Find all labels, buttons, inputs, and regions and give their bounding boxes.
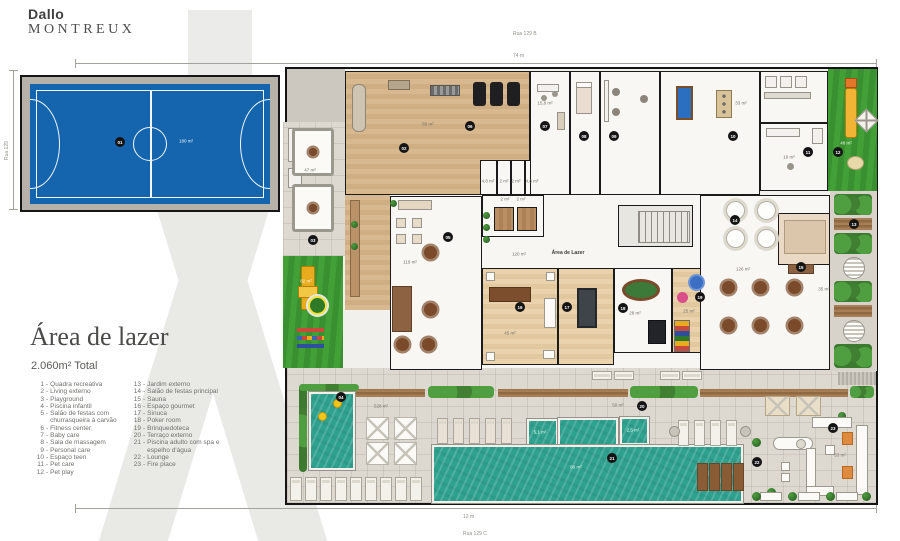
planter-green-2	[630, 386, 698, 398]
brand-subname: MONTREUX	[28, 22, 135, 38]
legend-item-text: Jardim externo	[147, 381, 223, 388]
plan-marker-09: 09	[609, 131, 619, 141]
legend-item-text: -	[46, 410, 48, 417]
garden-bushes-4	[834, 344, 872, 368]
legend-item-text: -	[46, 403, 48, 410]
legend-item-text: -	[46, 454, 48, 461]
legend-item-text: -	[143, 388, 145, 395]
side-table-b2	[740, 426, 751, 437]
exercise-rail	[388, 80, 410, 90]
in-pool-lounger-1	[697, 463, 708, 491]
plan-marker-12: 12	[833, 147, 843, 157]
legend-item-text: -	[46, 425, 48, 432]
side-table-b1	[669, 426, 680, 437]
lounger-row-2	[305, 477, 317, 501]
legend-item-text: 5	[31, 410, 44, 417]
legend-item-text: 2	[31, 388, 44, 395]
legend-item-text: Piscina adulto com spa e espelho d'água	[147, 439, 223, 454]
legend-item-text: Salão de festas com churrasqueira à carv…	[50, 410, 129, 425]
legend-item-text: 4	[31, 403, 44, 410]
road-label-top: Rua 129 B	[513, 31, 537, 37]
legend-item-text: 13	[128, 381, 141, 388]
legend-item-5: 5-Salão de festas com churrasqueira à ca…	[31, 410, 129, 425]
area-label: 4,8 m²	[526, 179, 539, 184]
dining-chair-1	[396, 218, 406, 228]
round-table-1	[424, 246, 437, 259]
sports-court	[30, 84, 270, 204]
poker-table	[622, 279, 660, 301]
area-label: 4,8 m²	[482, 179, 495, 184]
banquet-table-2	[757, 201, 776, 220]
left-dimension-line	[13, 70, 14, 210]
gym-bench-3	[507, 82, 520, 106]
area-label: 89 m²	[422, 122, 434, 127]
bistro-table-4	[722, 319, 735, 332]
area-label: 33 m²	[735, 101, 747, 106]
sun-lounger-a2	[453, 418, 464, 444]
legend-item-15: 15-Sauna	[128, 396, 223, 403]
legend-item-text: Lounge	[147, 454, 223, 461]
area-label: 120 m²	[512, 252, 526, 257]
area-label: 47 m²	[304, 168, 316, 173]
plan-marker-11: 11	[803, 147, 813, 157]
indoor-plant-2	[351, 221, 358, 228]
legend-item-text: -	[143, 381, 145, 388]
area-label: 45 m²	[504, 331, 516, 336]
area-label: 25 m²	[683, 309, 695, 314]
legend-item-text: -	[143, 403, 145, 410]
legend-column-1: 1-Quadra recreativa2-Living externo3-Pla…	[31, 381, 129, 476]
in-pool-lounger-4	[733, 463, 744, 491]
legend-item-9: 9-Personal care	[31, 447, 129, 454]
area-label: 2 m²	[512, 179, 521, 184]
lounger-row-4	[335, 477, 347, 501]
legend-item-text: Salão de festas principal	[147, 388, 223, 395]
lounge-umbrella-2	[796, 396, 821, 416]
banquet-table-4	[757, 229, 776, 248]
legend-item-text: Fitness center	[50, 425, 129, 432]
area-label: 15,8 m²	[537, 101, 552, 106]
elevator-1	[494, 207, 514, 231]
garden-planter-2	[834, 305, 872, 317]
legend-item-text: -	[46, 439, 48, 446]
baby-care-chair-2	[552, 91, 558, 97]
legend-item-text: 22	[128, 454, 141, 461]
plan-marker-17: 17	[562, 302, 572, 312]
legend-item-text: 11	[31, 461, 44, 468]
legend-item-text: Baby care	[50, 432, 129, 439]
baby-care-couch	[557, 112, 565, 130]
toy-shelf	[674, 320, 690, 352]
in-pool-lounger-2	[709, 463, 720, 491]
long-table	[398, 200, 432, 210]
fire-table-1	[842, 432, 853, 445]
indoor-plant-1	[390, 200, 397, 207]
planter-bush-1	[752, 492, 761, 501]
lounger-row-3	[320, 477, 332, 501]
legend-item-text: Pet play	[50, 469, 129, 476]
area-label: 35 m²	[818, 287, 830, 292]
terrace-lounger-a	[592, 371, 612, 380]
gym-bench-1	[473, 82, 486, 106]
floorplan-poster: Dallo MONTREUX Rua 129 B 74 m Rua 129 12…	[0, 0, 900, 541]
legend-item-21: 21-Piscina adulto com spa e espelho d'ág…	[128, 439, 223, 454]
legend-item-text: -	[46, 432, 48, 439]
legend-item-text: Piscina infantil	[50, 403, 129, 410]
court-center-circle	[133, 127, 167, 161]
indoor-plant-3	[351, 243, 358, 250]
pet-tub	[812, 128, 823, 144]
plan-marker-22: 22	[752, 457, 762, 467]
legend-item-11: 11-Pet care	[31, 461, 129, 468]
pet-grooming-counter	[766, 128, 800, 137]
legend-item-text: 10	[31, 454, 44, 461]
stair-treads	[638, 211, 690, 243]
area-label: 50 m²	[612, 403, 624, 408]
dumbbell-rack	[430, 85, 460, 96]
bistro-table-2	[754, 281, 767, 294]
pet-table	[787, 163, 794, 170]
lounger-row-8	[395, 477, 407, 501]
indoor-plant-5	[483, 224, 490, 231]
legend-item-text: 17	[128, 410, 141, 417]
sun-lounger-b3	[710, 420, 721, 446]
legend-item-text: -	[143, 432, 145, 439]
plan-marker-04: 04	[336, 392, 346, 402]
planter-box-2	[798, 492, 820, 501]
snooker-table	[577, 288, 597, 328]
lounge-umbrella-1	[765, 396, 790, 416]
area-label: 119 m²	[403, 260, 417, 265]
area-label: 2 m²	[517, 197, 526, 202]
sun-lounger-b2	[694, 420, 705, 446]
area-label: 126 m²	[736, 267, 750, 272]
planter-box-1	[760, 492, 782, 501]
lounger-row-5	[350, 477, 362, 501]
legend-item-text: Quadra recreativa	[50, 381, 129, 388]
legend-item-text: 12	[31, 469, 44, 476]
road-label-bottom: Rua 129 C	[463, 531, 487, 537]
total-area-subtitle: 2.060m² Total	[31, 360, 97, 372]
area-label: 80 m²	[570, 465, 582, 470]
garden-bushes-1	[834, 194, 872, 215]
legend-item-22: 22-Lounge	[128, 454, 223, 461]
terrace-lounger-d	[682, 371, 702, 380]
legend-item-2: 2-Living externo	[31, 388, 129, 395]
legend-item-14: 14-Salão de festas principal	[128, 388, 223, 395]
plan-marker-06: 06	[465, 121, 475, 131]
fire-table-2	[842, 466, 853, 479]
indoor-plant-4	[483, 212, 490, 219]
monkey-bar-blue	[297, 344, 324, 348]
legend-item-1: 1-Quadra recreativa	[31, 381, 129, 388]
legend-item-text: -	[143, 454, 145, 461]
lounge-plant-1	[752, 438, 761, 447]
living-table-2	[309, 204, 317, 212]
planter-green-3	[850, 386, 874, 398]
monkey-bar-multi	[297, 336, 324, 340]
garden-lounger-2	[843, 320, 865, 342]
weight-machine	[352, 84, 366, 132]
kids-pool-planter-top	[299, 384, 359, 391]
legend-item-7: 7-Baby care	[31, 432, 129, 439]
legend-item-10: 10-Espaço teen	[31, 454, 129, 461]
bottom-dimension-line	[75, 508, 877, 509]
legend-item-18: 18-Poker room	[128, 417, 223, 424]
legend-item-text: Sinuca	[147, 410, 223, 417]
legend-item-text: Poker room	[147, 417, 223, 424]
legend-item-text: Espaço gourmet	[147, 403, 223, 410]
planter-green-1	[428, 386, 494, 398]
pet-agility-top	[845, 78, 857, 88]
teen-pool-table	[676, 86, 693, 120]
indoor-plant-6	[483, 236, 490, 243]
planter-wood-2	[498, 389, 628, 397]
sun-lounger-a3	[469, 418, 480, 444]
area-label: 528 m²	[374, 404, 388, 409]
legend-item-text: 1	[31, 381, 44, 388]
planter-bush-4	[862, 492, 871, 501]
toy-rug	[690, 276, 703, 289]
legend-item-text: 14	[128, 388, 141, 395]
plan-marker-21: 21	[607, 453, 617, 463]
personal-care-counter	[604, 80, 609, 122]
area-label: 82 m²	[300, 279, 312, 284]
appliance-2	[780, 76, 792, 88]
plan-marker-03: 03	[308, 235, 318, 245]
legend-item-text: -	[143, 410, 145, 417]
umbrella-2	[394, 417, 417, 440]
legend-item-text: 23	[128, 461, 141, 468]
brand-name: Dallo	[28, 6, 64, 22]
legend-item-19: 19-Brinquedoteca	[128, 425, 223, 432]
legend-item-6: 6-Fitness center	[31, 425, 129, 432]
legend-item-text: 20	[128, 432, 141, 439]
round-table-4	[422, 338, 435, 351]
length-label-bottom: 12 m	[463, 514, 474, 520]
area-label: 53 m²	[834, 453, 846, 458]
length-label-top: 74 m	[513, 53, 524, 59]
bistro-table-1	[722, 281, 735, 294]
salon-chair-2	[612, 108, 620, 116]
area-label: 2 m²	[501, 197, 510, 202]
legend-item-text: Sauna	[147, 396, 223, 403]
plan-marker-07: 07	[540, 121, 550, 131]
legend-item-text: Personal care	[50, 447, 129, 454]
foosball-table	[716, 90, 732, 118]
area-label: 5,1 m²	[534, 430, 547, 435]
legend-item-text: Brinquedoteca	[147, 425, 223, 432]
legend-item-text: 3	[31, 396, 44, 403]
salon-chair-3	[640, 95, 648, 103]
bistro-table-3	[788, 281, 801, 294]
legend-item-text: 15	[128, 396, 141, 403]
sun-lounger-a4	[485, 418, 496, 444]
gourmet-sofa	[544, 298, 556, 328]
area-label: 2 m²	[500, 179, 509, 184]
legend-item-text: -	[46, 381, 48, 388]
legend-item-13: 13-Jardim externo	[128, 381, 223, 388]
legend-item-text: 19	[128, 425, 141, 432]
legend-item-text: Fire place	[147, 461, 223, 468]
dining-chair-3	[396, 234, 406, 244]
plan-marker-02: 02	[399, 143, 409, 153]
appliance-1	[765, 76, 777, 88]
planter-bush-2	[788, 492, 797, 501]
plan-marker-05: 05	[443, 232, 453, 242]
garden-bushes-3	[834, 281, 872, 302]
dining-chair-2	[412, 218, 422, 228]
lounge-round-table	[796, 439, 806, 449]
copa-counter	[764, 92, 811, 99]
deck-slats-right	[838, 372, 876, 385]
legend-item-text: Sala de massagem	[50, 439, 129, 446]
legend-item-text: -	[46, 388, 48, 395]
monkey-bar-red	[297, 328, 324, 332]
toy-table	[677, 292, 688, 303]
fire-sofa-right	[856, 425, 868, 495]
legend-item-text: 21	[128, 439, 141, 446]
sun-lounger-a5	[501, 418, 512, 444]
legend-item-16: 16-Espaço gourmet	[128, 403, 223, 410]
garden-bushes-2	[834, 233, 872, 254]
legend-item-text: 8	[31, 439, 44, 446]
sun-lounger-b4	[726, 420, 737, 446]
legend-item-17: 17-Sinuca	[128, 410, 223, 417]
banquet-table-3	[726, 229, 745, 248]
plan-marker-13: 13	[849, 219, 859, 229]
legend-item-3: 3-Playground	[31, 396, 129, 403]
lounge-game-table-2	[781, 473, 790, 482]
bistro-table-5	[754, 319, 767, 332]
legend-item-text: Espaço teen	[50, 454, 129, 461]
plan-marker-18: 18	[618, 303, 628, 313]
area-label: 180 m²	[179, 139, 193, 144]
umbrella-1	[366, 417, 389, 440]
terrace-lounger-b	[614, 371, 634, 380]
play-target-ring	[308, 296, 327, 315]
plan-marker-01: 01	[115, 137, 125, 147]
area-label: 2,5 m²	[627, 428, 640, 433]
area-label: 48 m²	[840, 141, 852, 146]
lounger-row-1	[290, 477, 302, 501]
plan-marker-16: 16	[515, 302, 525, 312]
legend-item-text: Playground	[50, 396, 129, 403]
legend-column-2: 13-Jardim externo14-Salão de festas prin…	[128, 381, 223, 469]
legend-item-20: 20-Terraço externo	[128, 432, 223, 439]
in-pool-lounger-3	[721, 463, 732, 491]
pet-agility-beam	[845, 88, 857, 138]
lounge-game-table-1	[781, 462, 790, 471]
lounger-row-6	[365, 477, 377, 501]
plan-marker-15: 15	[796, 262, 806, 272]
salon-chair-1	[612, 88, 620, 96]
legend-item-text: -	[143, 461, 145, 468]
legend-item-text: -	[46, 469, 48, 476]
poker-sideboard	[648, 320, 666, 344]
living-table-1	[309, 148, 317, 156]
legend-item-12: 12-Pet play	[31, 469, 129, 476]
legend-item-text: Terraço externo	[147, 432, 223, 439]
pool-upper-arm	[558, 418, 618, 446]
legend-item-text: Pet care	[50, 461, 129, 468]
pool-duck-1	[318, 412, 327, 421]
sun-lounger-a1	[437, 418, 448, 444]
area-label: 28 m²	[629, 311, 641, 316]
legend-item-text: 7	[31, 432, 44, 439]
plan-marker-10: 10	[728, 131, 738, 141]
legend-item-text: Living externo	[50, 388, 129, 395]
legend-item-4: 4-Piscina infantil	[31, 403, 129, 410]
legend-item-text: -	[143, 425, 145, 432]
garden-lounger-1	[843, 257, 865, 279]
legend-item-text: -	[143, 439, 145, 446]
pet-sand-circle	[847, 156, 864, 170]
plan-marker-08: 08	[579, 131, 589, 141]
umbrella-3	[366, 442, 389, 465]
kids-pool-planter-left	[299, 384, 307, 472]
plan-marker-20: 20	[637, 401, 647, 411]
legend-item-text: -	[46, 447, 48, 454]
espaco-teen	[660, 71, 760, 195]
legend-item-8: 8-Sala de massagem	[31, 439, 129, 446]
legend-item-23: 23-Fire place	[128, 461, 223, 468]
area-label: 19 m²	[783, 155, 795, 160]
gourmet-chair-4	[543, 350, 555, 359]
legend-item-text: 18	[128, 417, 141, 424]
kids-pool	[309, 392, 355, 470]
gym-bench-2	[490, 82, 503, 106]
round-table-3	[396, 338, 409, 351]
gourmet-chair-1	[486, 272, 495, 281]
legend-item-text: 6	[31, 425, 44, 432]
legend-item-text: -	[46, 461, 48, 468]
core-area-label: Área de Lazer	[552, 250, 585, 256]
gourmet-chair-2	[486, 352, 495, 361]
gourmet-table	[489, 287, 531, 302]
legend-item-text: 9	[31, 447, 44, 454]
sauna-lounger	[784, 220, 826, 254]
elevator-2	[517, 207, 537, 231]
page-title: Área de lazer	[30, 322, 169, 352]
planter-box-3	[836, 492, 858, 501]
legend-item-text: -	[143, 417, 145, 424]
plan-marker-19: 19	[695, 292, 705, 302]
round-table-2	[424, 303, 437, 316]
plan-marker-14: 14	[730, 215, 740, 225]
umbrella-4	[394, 442, 417, 465]
legend-item-text: -	[46, 396, 48, 403]
road-label-left: Rua 129	[4, 141, 10, 160]
top-dimension-line	[75, 63, 877, 64]
lounger-row-9	[410, 477, 422, 501]
dining-chair-4	[412, 234, 422, 244]
appliance-3	[795, 76, 807, 88]
legend-item-text: 16	[128, 403, 141, 410]
kitchen-island	[392, 286, 412, 332]
lounger-row-7	[380, 477, 392, 501]
planter-bush-3	[826, 492, 835, 501]
bistro-table-6	[788, 319, 801, 332]
plan-marker-23: 23	[828, 423, 838, 433]
gourmet-chair-3	[546, 272, 555, 281]
terrace-lounger-c	[660, 371, 680, 380]
legend-item-text: -	[143, 396, 145, 403]
